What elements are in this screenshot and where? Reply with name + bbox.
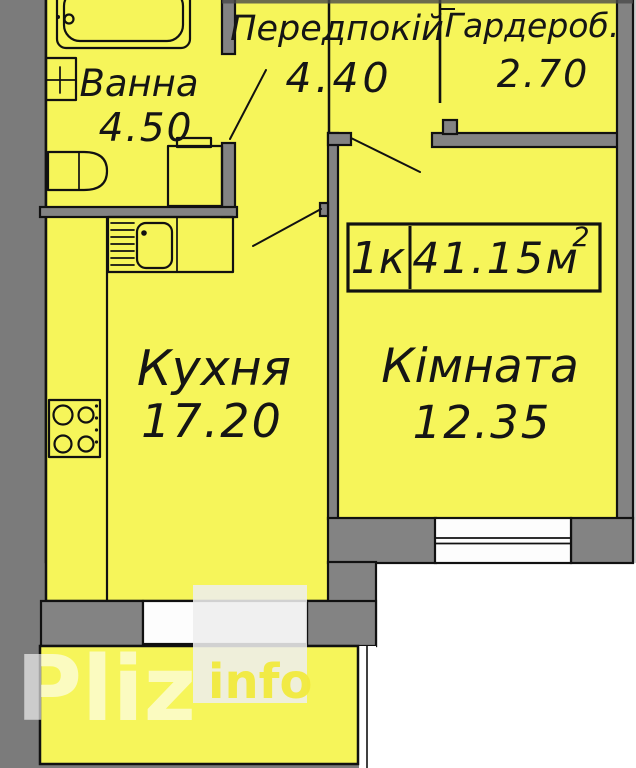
wall-wardrobe-tab [443,120,457,134]
watermark-primary: Pliz [16,637,196,742]
room-label-room: Кімната [381,339,579,394]
room-area-wardrobe: 2.70 [497,52,590,96]
floor-plan-canvas: 1к 41.15м 2 Передпокій 4.40 Гардероб. 2.… [0,0,636,768]
room-area-hallway: 4.40 [285,54,392,102]
room-balcony-window [435,518,571,563]
wall-right-exterior [617,0,633,519]
wall-below-room-left [328,518,436,563]
wall-wardrobe-bottom [432,133,618,147]
room-label-hallway: Передпокій [230,9,444,49]
wall-room-left [328,133,338,519]
room-area-kitchen: 17.20 [141,394,283,448]
wall-bathroom-right-lower [222,143,235,217]
wall-bathroom-bottom [40,207,237,217]
wall-room-door-cap [328,133,351,145]
room-label-bathroom: Ванна [79,62,198,105]
badge-rooms-count: 1к [351,233,406,284]
floor-plan: 1к 41.15м 2 Передпокій 4.40 Гардероб. 2.… [0,0,636,768]
badge-area-value: 41.15м [412,234,580,284]
drainer-icon [111,223,134,265]
watermark-secondary: info [208,654,312,710]
badge-area-superscript: 2 [572,222,589,253]
room-label-kitchen: Кухня [137,340,291,397]
room-label-wardrobe: Гардероб. [445,6,620,45]
top-cut-wall-edge [222,0,633,4]
area-badge: 1к 41.15м 2 [348,222,600,291]
wall-below-room-right [571,518,633,563]
room-area-bathroom: 4.50 [99,106,194,151]
wall-below-kitchen-right [307,601,376,646]
room-area-room: 12.35 [413,396,552,449]
outside-white-area [376,563,636,768]
